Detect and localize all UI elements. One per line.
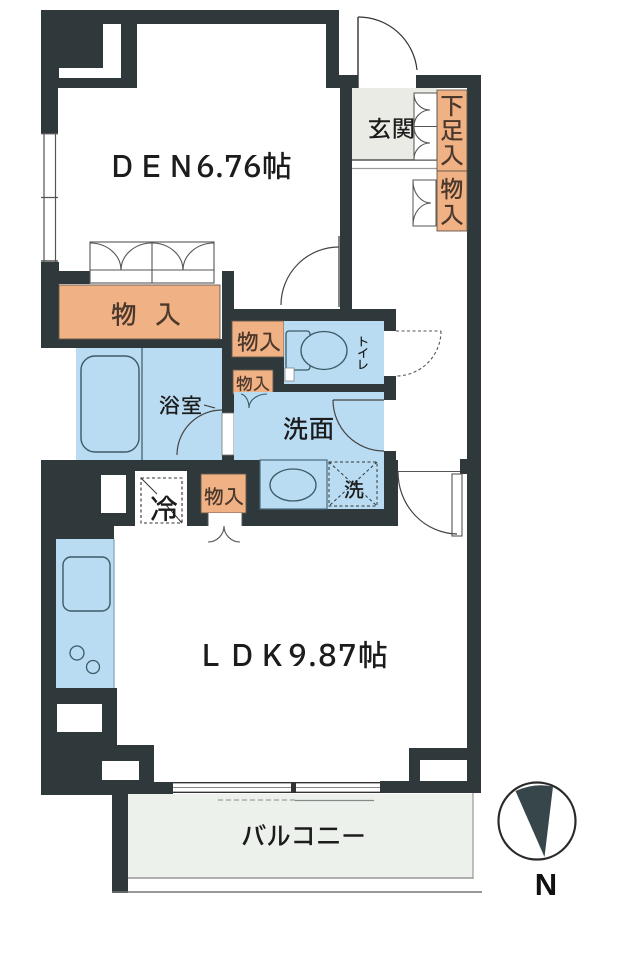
svg-text:N: N (535, 867, 557, 902)
